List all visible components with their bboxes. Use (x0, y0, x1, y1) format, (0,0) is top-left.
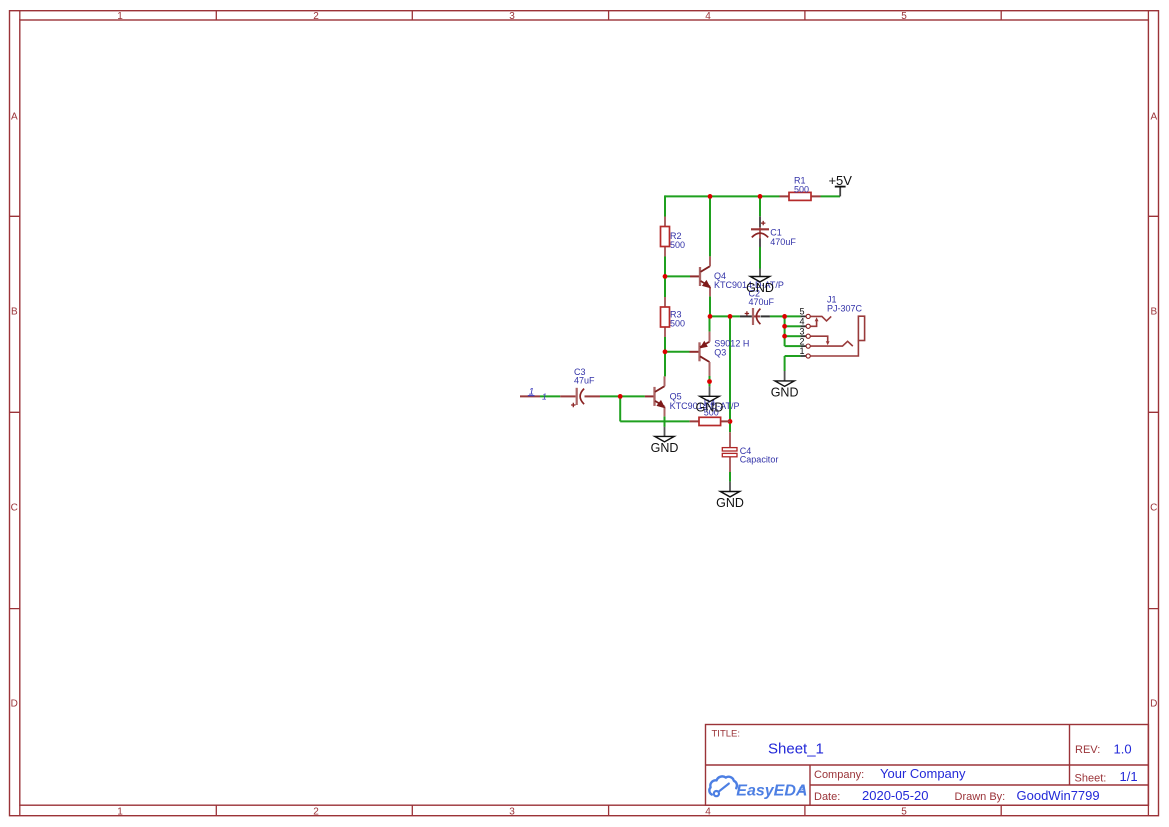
svg-text:EasyEDA: EasyEDA (736, 782, 807, 799)
svg-text:C: C (11, 503, 18, 514)
svg-text:1: 1 (117, 807, 123, 818)
svg-text:GND: GND (746, 281, 774, 295)
svg-text:5: 5 (799, 307, 804, 317)
svg-text:500: 500 (670, 240, 685, 250)
svg-text:Sheet_1: Sheet_1 (768, 741, 824, 758)
svg-text:4: 4 (705, 807, 711, 818)
svg-text:1.0: 1.0 (1114, 742, 1132, 757)
svg-text:Q5: Q5 (670, 391, 682, 401)
svg-text:3: 3 (509, 807, 515, 818)
svg-text:1: 1 (542, 392, 547, 402)
svg-text:D: D (1150, 699, 1157, 710)
svg-text:D: D (11, 699, 18, 710)
svg-text:GND: GND (696, 401, 724, 415)
svg-text:GND: GND (651, 441, 679, 455)
svg-text:GoodWin7799: GoodWin7799 (1017, 788, 1100, 803)
svg-text:Date:: Date: (814, 791, 840, 803)
svg-text:1: 1 (117, 11, 123, 22)
svg-text:Company:: Company: (814, 769, 864, 781)
svg-text:2: 2 (313, 807, 319, 818)
svg-text:PJ-307C: PJ-307C (827, 304, 863, 314)
svg-text:1/1: 1/1 (1120, 769, 1138, 784)
svg-text:A: A (11, 112, 18, 123)
svg-text:47uF: 47uF (574, 375, 595, 385)
svg-text:2: 2 (799, 336, 804, 346)
svg-text:1: 1 (799, 346, 804, 356)
svg-text:TITLE:: TITLE: (712, 728, 741, 739)
svg-text:GND: GND (716, 496, 744, 510)
svg-text:4: 4 (799, 317, 804, 327)
svg-text:B: B (11, 307, 18, 318)
svg-text:A: A (1150, 112, 1157, 123)
svg-text:5: 5 (901, 11, 907, 22)
svg-text:+5V: +5V (828, 173, 852, 188)
svg-text:GND: GND (771, 385, 799, 399)
svg-text:500: 500 (670, 318, 685, 328)
svg-text:500: 500 (794, 185, 809, 195)
svg-text:2020-05-20: 2020-05-20 (862, 788, 929, 803)
svg-text:3: 3 (799, 326, 804, 336)
svg-text:Q3: Q3 (714, 348, 726, 358)
svg-text:3: 3 (509, 11, 515, 22)
svg-text:C: C (1150, 503, 1157, 514)
svg-text:B: B (1150, 307, 1157, 318)
svg-text:Sheet:: Sheet: (1075, 772, 1107, 784)
svg-text:Drawn By:: Drawn By: (955, 791, 1006, 803)
svg-text:4: 4 (705, 11, 711, 22)
svg-text:REV:: REV: (1075, 744, 1100, 756)
svg-text:470uF: 470uF (770, 237, 796, 247)
svg-text:470uF: 470uF (749, 297, 775, 307)
svg-text:Capacitor: Capacitor (740, 455, 779, 465)
svg-text:5: 5 (901, 807, 907, 818)
svg-text:2: 2 (313, 11, 319, 22)
svg-text:Your Company: Your Company (880, 766, 966, 781)
